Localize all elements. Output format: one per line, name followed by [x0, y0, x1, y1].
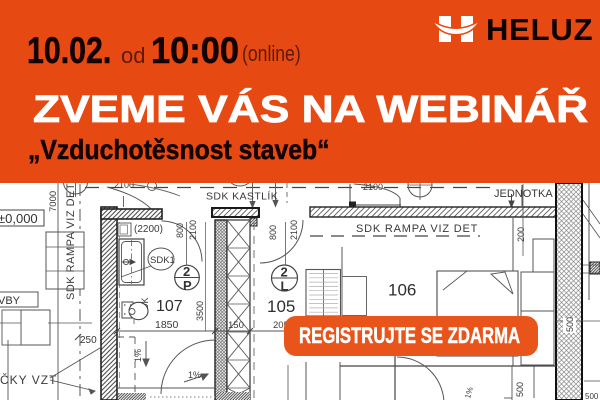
svg-text:(2200): (2200)	[134, 224, 163, 235]
svg-text:ČKY VZT: ČKY VZT	[0, 372, 57, 387]
svg-text:107: 107	[156, 298, 183, 315]
svg-text:SDK1: SDK1	[150, 255, 175, 266]
svg-text:2100: 2100	[289, 220, 299, 240]
svg-text:7000: 7000	[48, 191, 59, 212]
svg-text:1%: 1%	[188, 370, 201, 380]
svg-text:SDK RAMPA VIZ DET: SDK RAMPA VIZ DET	[65, 183, 77, 300]
svg-text:105: 105	[267, 297, 295, 316]
svg-text:2: 2	[281, 265, 288, 280]
svg-text:2: 2	[183, 264, 190, 279]
svg-text:800: 800	[175, 223, 185, 238]
svg-text:P: P	[183, 278, 192, 293]
svg-text:SDK RAMPA VIZ DET: SDK RAMPA VIZ DET	[356, 223, 478, 235]
svg-text:VBY: VBY	[0, 295, 21, 307]
svg-text:L: L	[281, 279, 289, 294]
svg-text:±0,000: ±0,000	[0, 211, 38, 226]
svg-text:1%: 1%	[463, 386, 475, 399]
svg-text:250: 250	[80, 335, 97, 346]
svg-text:106: 106	[388, 281, 416, 300]
svg-text:1850: 1850	[155, 319, 179, 331]
svg-text:2100: 2100	[188, 220, 198, 240]
svg-text:3500: 3500	[195, 301, 205, 321]
svg-text:JEDNOTKA: JEDNOTKA	[494, 188, 553, 200]
svg-text:200: 200	[516, 227, 526, 242]
svg-text:1%: 1%	[133, 349, 143, 362]
svg-text:800: 800	[268, 225, 278, 240]
svg-text:500: 500	[585, 392, 599, 400]
svg-text:SDK KASTLÍK: SDK KASTLÍK	[206, 190, 278, 203]
svg-text:500: 500	[515, 382, 525, 397]
svg-text:150: 150	[228, 320, 244, 331]
svg-text:500: 500	[565, 317, 575, 332]
